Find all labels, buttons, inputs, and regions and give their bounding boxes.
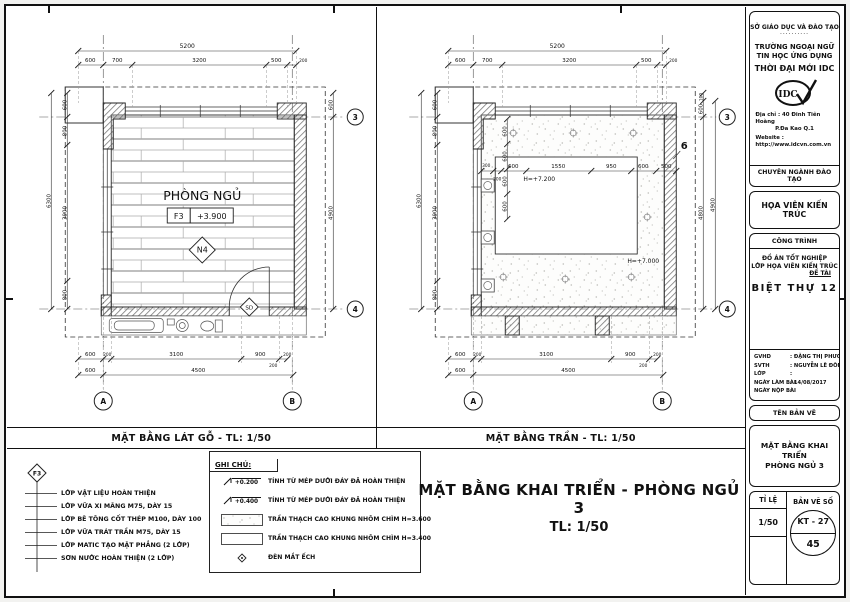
svg-text:200: 200	[639, 363, 647, 369]
ceiling-plan-drawing: H=+7.200 H=+7.000 6 300 200 600 1550	[377, 7, 746, 427]
svg-text:200: 200	[103, 352, 111, 358]
caption-row: MẶT BẰNG LÁT GỖ - TL: 1/50 MẶT BẰNG TRẦN…	[7, 427, 745, 449]
project-header: CÔNG TRÌNH	[750, 234, 839, 249]
svg-text:600: 600	[698, 103, 704, 114]
school-name-line2: TIN HỌC ỨNG DỤNG	[757, 52, 833, 61]
ceiling-finish	[481, 115, 664, 307]
plan-panel-ceiling: H=+7.200 H=+7.000 6 300 200 600 1550	[376, 7, 746, 427]
program-header: CHUYÊN NGÀNH ĐÀO TẠO	[750, 165, 839, 186]
sheet-title-scale: TL: 1/50	[417, 520, 741, 535]
svg-text:1550: 1550	[551, 164, 565, 170]
sheet-number-bubble: KT - 27 45	[790, 510, 836, 556]
svg-text:200: 200	[493, 177, 501, 183]
svg-text:900: 900	[255, 352, 266, 358]
project-box: CÔNG TRÌNH ĐỒ ÁN TỐT NGHIỆP LỚP HỌA VIÊN…	[749, 233, 840, 401]
divider-dots: ..........	[780, 31, 809, 35]
note-tag: N4	[197, 246, 208, 255]
svg-text:600: 600	[328, 99, 334, 110]
program-name-box: HỌA VIÊN KIẾN TRÚC	[749, 191, 840, 229]
svg-text:5200: 5200	[549, 43, 564, 50]
caption-wood-floor-plan: MẶT BẰNG LÁT GỖ - TL: 1/50	[7, 428, 376, 448]
svg-text:500: 500	[641, 58, 652, 64]
project-line2: LỚP HỌA VIÊN KIẾN TRÚC	[750, 263, 839, 271]
svg-text:800: 800	[432, 289, 438, 300]
website-row: Website : http://www.idcvn.com.vn	[755, 135, 833, 149]
level-arrow-icon	[223, 496, 232, 505]
svg-text:A: A	[100, 397, 106, 406]
scale-label: TỈ LỆ	[750, 492, 786, 509]
sheet-number-column: BẢN VẼ SỐ KT - 27 45	[787, 492, 839, 584]
note-item: +0.200 TÍNH TỪ MÉP DƯỚI ĐÁY ĐÃ HOÀN THIỆ…	[210, 472, 420, 491]
plans-row: SD PHÒNG NGỦ F3 +3.900 N4	[7, 7, 745, 427]
school-name-line1: TRƯỜNG NGOẠI NGỮ	[755, 43, 834, 52]
svg-text:3: 3	[353, 113, 358, 122]
svg-text:600: 600	[502, 201, 508, 212]
title-block: SỞ GIÁO DỤC VÀ ĐÀO TẠO .......... TRƯỜNG…	[746, 7, 843, 595]
note-item: TRẦN THẠCH CAO KHUNG NHÔM CHÌM H=3.600	[210, 510, 420, 529]
svg-text:B: B	[289, 397, 295, 406]
svg-text:3100: 3100	[539, 352, 553, 358]
drawing-name-box: MẶT BẰNG KHAI TRIỂN PHÒNG NGỦ 3	[749, 425, 840, 487]
address-row: Địa chỉ : 40 Đinh Tiên Hoàng	[755, 112, 833, 126]
sheet-title-text: MẶT BẰNG KHAI TRIỂN - PHÒNG NGỦ 3	[417, 481, 741, 517]
scale-column: TỈ LỆ 1/50	[750, 492, 787, 584]
svg-text:600: 600	[62, 99, 68, 110]
svg-text:4900: 4900	[710, 198, 716, 212]
drawing-name-line1: MẶT BẰNG KHAI TRIỂN	[750, 441, 839, 461]
door-tag-label: SD	[245, 305, 253, 311]
svg-text:4: 4	[724, 305, 729, 314]
svg-text:B: B	[659, 397, 665, 406]
svg-text:6300: 6300	[416, 194, 422, 208]
room-name: PHÒNG NGỦ	[163, 187, 241, 203]
finish-layer-list: LỚP VẬT LIỆU HOÀN THIỆN LỚP VỮA XI MĂNG …	[61, 487, 201, 565]
svg-text:600: 600	[85, 58, 96, 64]
finish-layer: LỚP MATIC TẠO MẶT PHẲNG (2 LỚP)	[61, 539, 201, 552]
idc-logo: IDC	[766, 76, 824, 110]
sheet-title: MẶT BẰNG KHAI TRIỂN - PHÒNG NGỦ 3 TL: 1/…	[417, 481, 741, 535]
svg-text:800: 800	[432, 125, 438, 136]
school-brand: THỜI ĐẠI MỚI IDC	[755, 64, 835, 73]
svg-text:4: 4	[353, 305, 358, 314]
level-mark-icon: +0.200	[216, 477, 268, 486]
svg-text:200: 200	[283, 352, 291, 358]
note-item: +0.400 TÍNH TỪ MÉP DƯỚI ĐÁY ĐÃ HOÀN THIỆ…	[210, 491, 420, 510]
field-row: SVTH: NGUYỄN LÊ ĐÔNG NHI	[754, 362, 836, 371]
svg-text:600: 600	[502, 151, 508, 162]
project-line1: ĐỒ ÁN TỐT NGHIỆP	[750, 255, 839, 263]
project-name: BIỆT THỰ 12	[750, 283, 839, 294]
svg-text:3900: 3900	[62, 206, 68, 220]
svg-text:100: 100	[698, 93, 704, 101]
finish-tag: F3	[174, 212, 184, 221]
notes-box: GHI CHÚ: +0.200 TÍNH TỪ MÉP DƯỚI ĐÁY ĐÃ …	[209, 451, 421, 573]
drawing-name-header: TÊN BẢN VẼ	[749, 405, 840, 421]
plain-ceiling-swatch-icon	[216, 533, 268, 545]
svg-text:800: 800	[62, 125, 68, 136]
finish-layer: LỚP BÊ TÔNG CỐT THÉP M100, DÀY 100	[61, 513, 201, 526]
finish-layer: LỚP VỮA XI MĂNG M75, DÀY 15	[61, 500, 201, 513]
svg-text:3900: 3900	[432, 206, 438, 220]
svg-text:600: 600	[432, 99, 438, 110]
svg-text:5200: 5200	[180, 43, 195, 50]
svg-text:200: 200	[653, 352, 661, 358]
svg-text:600: 600	[502, 126, 508, 137]
wood-floor-plan-drawing: SD PHÒNG NGỦ F3 +3.900 N4	[7, 7, 376, 427]
address-row2: P.Đa Kao Q.1	[755, 126, 833, 133]
scale-value: 1/50	[750, 509, 786, 537]
finish-marker: F3	[33, 471, 41, 478]
level-value: +3.900	[197, 212, 227, 221]
svg-text:A: A	[470, 397, 476, 406]
field-row: LỚP:	[754, 370, 836, 379]
svg-text:3: 3	[724, 113, 729, 122]
sheet-number: 45	[791, 534, 835, 556]
sheet-content: SD PHÒNG NGỦ F3 +3.900 N4	[7, 7, 843, 595]
svg-text:6300: 6300	[46, 194, 52, 208]
field-row: NGÀY LÀM BÀI: 14/08/2017	[754, 379, 836, 388]
svg-text:600: 600	[502, 176, 508, 187]
field-row: NGÀY NỘP BÀI:	[754, 387, 836, 396]
svg-text:600: 600	[638, 164, 649, 170]
svg-text:500: 500	[271, 58, 282, 64]
svg-text:600: 600	[85, 368, 96, 374]
svg-text:950: 950	[606, 164, 617, 170]
level-arrow-icon	[223, 477, 232, 486]
bottom-strip: F3 LỚP VẬT LIỆU HOÀN THIỆN LỚP VỮA XI MĂ…	[7, 449, 745, 595]
svg-text:300: 300	[482, 163, 490, 169]
svg-text:800: 800	[62, 289, 68, 300]
finish-layer: SƠN NƯỚC HOÀN THIỆN (2 LỚP)	[61, 552, 201, 565]
sheet-code: KT - 27	[791, 511, 835, 534]
svg-text:200: 200	[473, 352, 481, 358]
svg-text:IDC: IDC	[778, 90, 797, 100]
svg-text:4800: 4800	[698, 206, 704, 220]
svg-text:4500: 4500	[561, 368, 575, 374]
note-item: ĐÈN MẮT ẾCH	[210, 548, 420, 567]
svg-text:600: 600	[455, 58, 466, 64]
textured-ceiling-swatch-icon	[216, 514, 268, 526]
topic-label: ĐỀ TÀI	[750, 270, 839, 277]
ceiling-height-field: H=+7.000	[627, 258, 659, 265]
main-area: SD PHÒNG NGỦ F3 +3.900 N4	[7, 7, 746, 595]
finish-layers-legend: F3 LỚP VẬT LIỆU HOÀN THIỆN LỚP VỮA XI MĂ…	[15, 457, 211, 585]
svg-text:4500: 4500	[191, 368, 205, 374]
svg-text:600: 600	[85, 352, 96, 358]
ceiling-recessed-panel	[495, 157, 637, 254]
downlight-icon	[216, 553, 268, 563]
finish-layer: LỚP VẬT LIỆU HOÀN THIỆN	[61, 487, 201, 500]
svg-text:600: 600	[455, 352, 466, 358]
svg-text:4900: 4900	[328, 206, 334, 220]
svg-text:3200: 3200	[562, 58, 576, 64]
svg-text:500: 500	[661, 164, 672, 170]
svg-text:3100: 3100	[169, 352, 183, 358]
ceiling-height-center: H=+7.200	[523, 176, 555, 183]
plan-panel-wood-floor: SD PHÒNG NGỦ F3 +3.900 N4	[7, 7, 376, 427]
field-row: GVHD: ĐẶNG THỊ PHƯƠNG CHI	[754, 353, 836, 362]
section-mark: 6	[680, 141, 687, 152]
svg-text:900: 900	[625, 352, 636, 358]
svg-text:200: 200	[669, 58, 677, 64]
note-item: TRẦN THẠCH CAO KHUNG NHÔM CHÌM H=3.400	[210, 529, 420, 548]
level-mark-icon: +0.400	[216, 496, 268, 505]
svg-text:3200: 3200	[192, 58, 206, 64]
school-info-box: SỞ GIÁO DỤC VÀ ĐÀO TẠO .......... TRƯỜNG…	[749, 11, 840, 187]
svg-text:200: 200	[299, 58, 307, 64]
finish-layer: LỚP VỮA TRÁT TRẦN M75, DÀY 15	[61, 526, 201, 539]
project-fields: GVHD: ĐẶNG THỊ PHƯƠNG CHI SVTH: NGUYỄN L…	[750, 349, 839, 400]
svg-text:600: 600	[455, 368, 466, 374]
svg-text:700: 700	[482, 58, 493, 64]
drawing-sheet: SD PHÒNG NGỦ F3 +3.900 N4	[0, 0, 850, 602]
scale-and-number-box: TỈ LỆ 1/50 BẢN VẼ SỐ KT - 27 45	[749, 491, 840, 585]
svg-text:200: 200	[269, 363, 277, 369]
caption-ceiling-plan: MẶT BẰNG TRẦN - TL: 1/50	[376, 428, 746, 448]
svg-text:700: 700	[112, 58, 123, 64]
drawing-name-line2: PHÒNG NGỦ 3	[765, 461, 824, 471]
sheet-number-label: BẢN VẼ SỐ	[793, 492, 833, 508]
notes-header: GHI CHÚ:	[210, 459, 278, 472]
